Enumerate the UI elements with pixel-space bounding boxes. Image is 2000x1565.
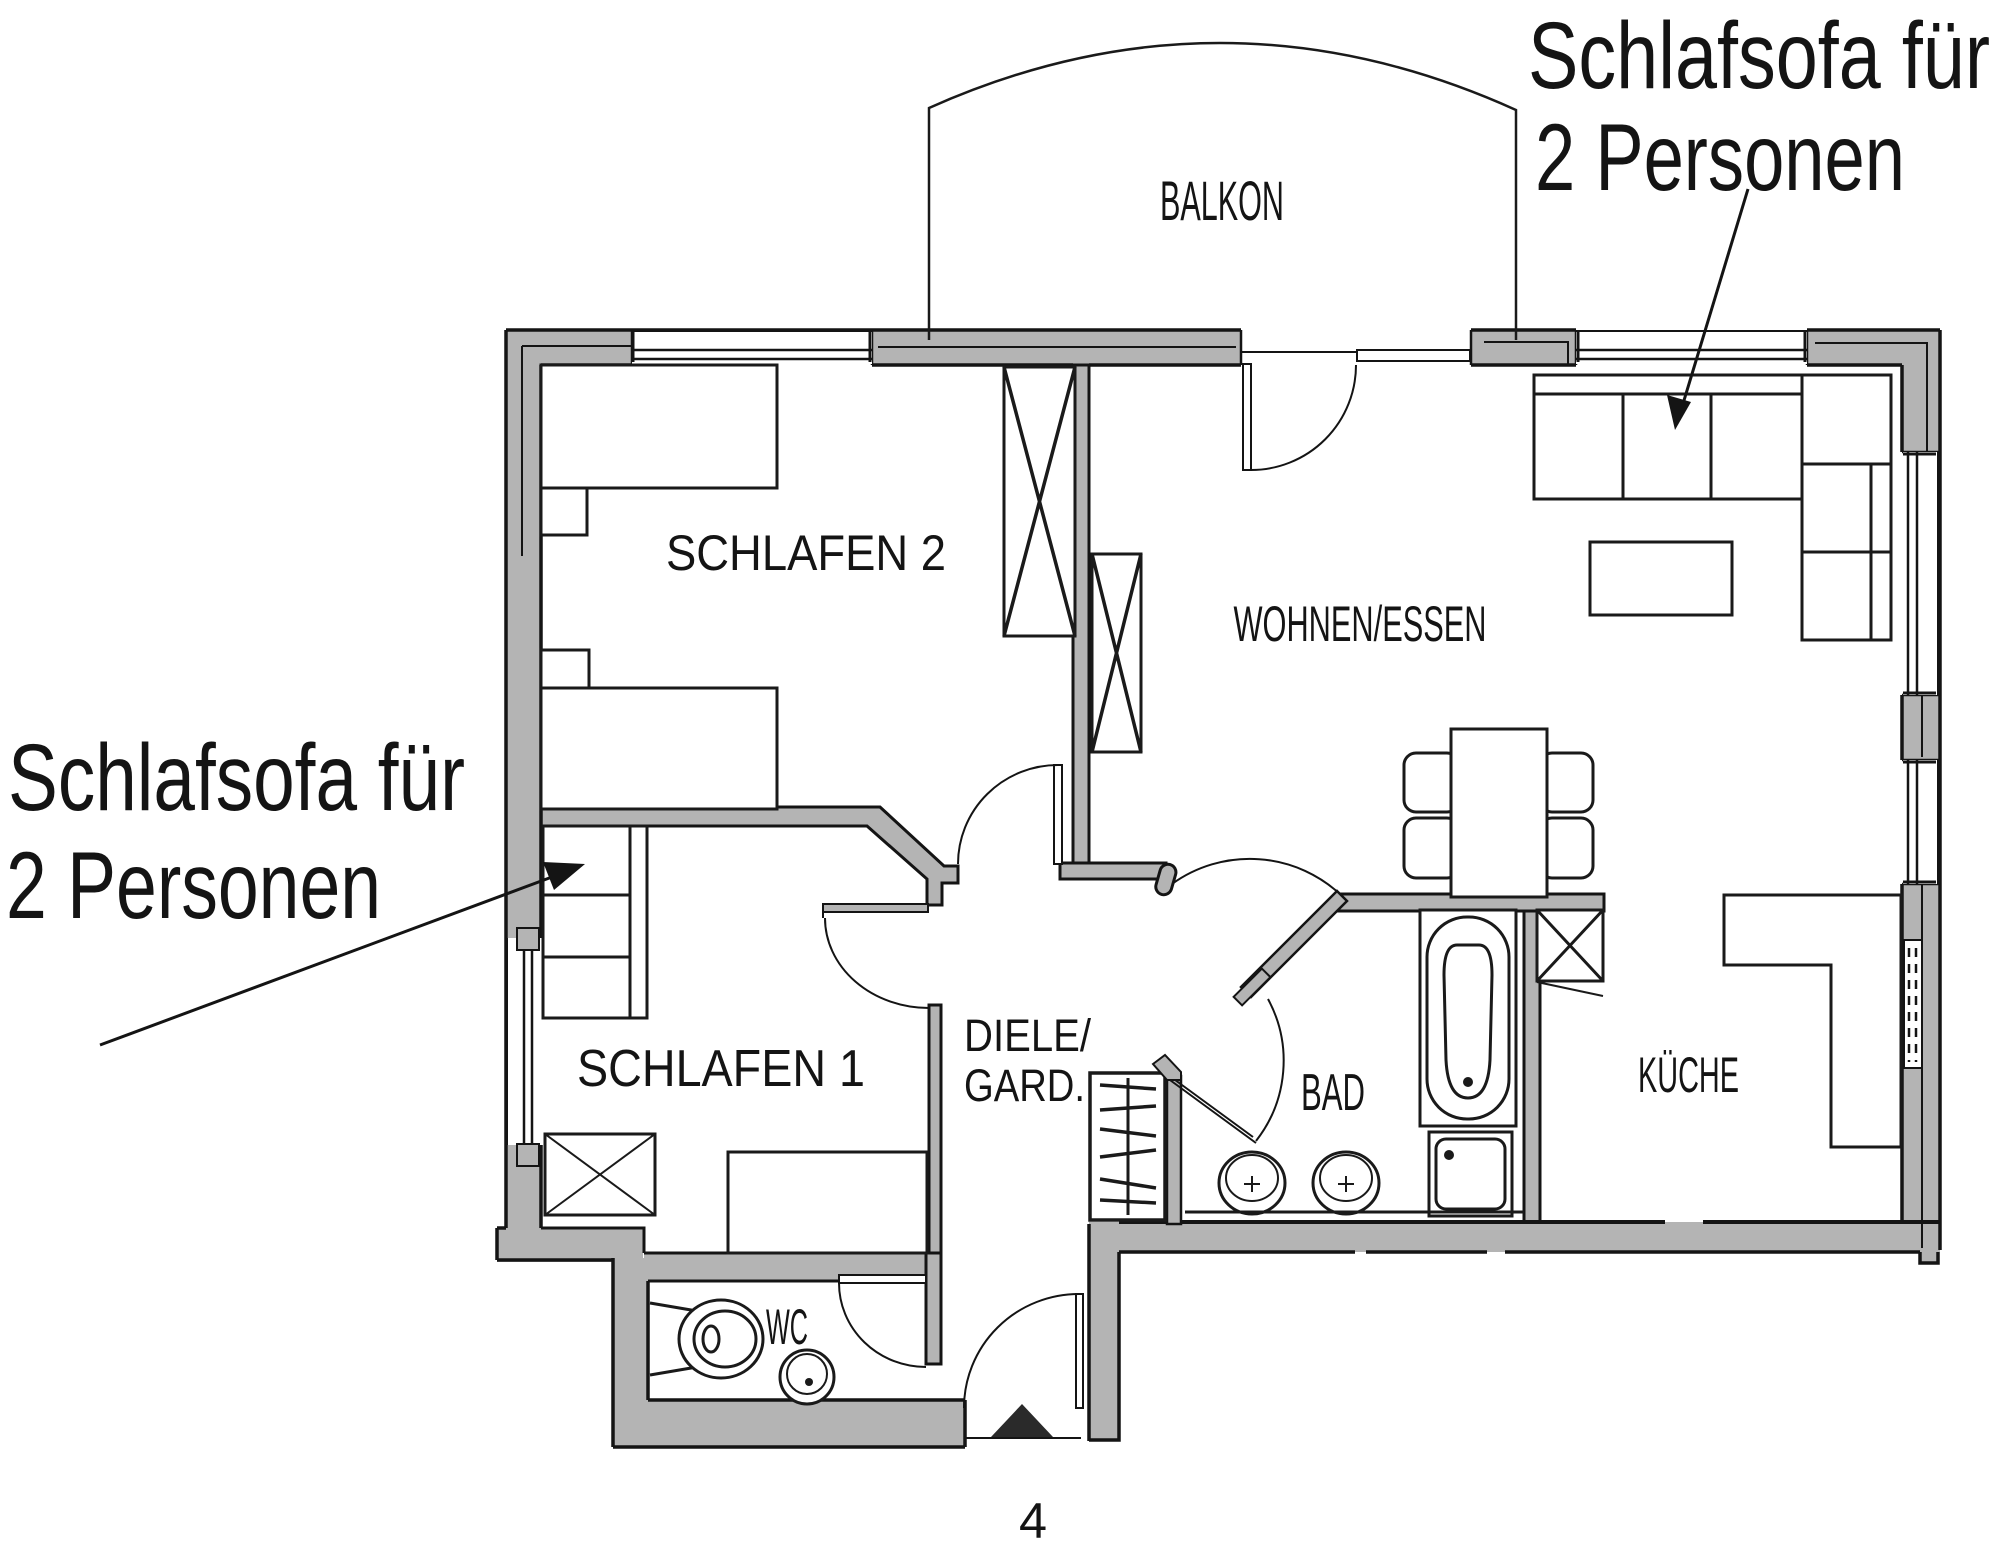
svg-text:4: 4 (1019, 1493, 1047, 1549)
svg-text:2 Personen: 2 Personen (6, 833, 381, 939)
svg-text:BALKON: BALKON (1160, 169, 1284, 232)
svg-text:Schlafsofa für: Schlafsofa für (1528, 3, 1990, 109)
svg-text:WOHNEN/ESSEN: WOHNEN/ESSEN (1234, 596, 1487, 652)
svg-text:BAD: BAD (1301, 1064, 1365, 1122)
svg-text:SCHLAFEN 2: SCHLAFEN 2 (666, 525, 946, 581)
svg-text:Schlafsofa für: Schlafsofa für (8, 725, 465, 831)
svg-text:DIELE/: DIELE/ (964, 1010, 1091, 1061)
svg-text:2 Personen: 2 Personen (1535, 105, 1905, 211)
svg-text:GARD.: GARD. (964, 1060, 1085, 1111)
svg-text:KÜCHE: KÜCHE (1638, 1047, 1739, 1103)
svg-text:SCHLAFEN 1: SCHLAFEN 1 (577, 1040, 865, 1098)
svg-text:WC: WC (766, 1299, 808, 1355)
